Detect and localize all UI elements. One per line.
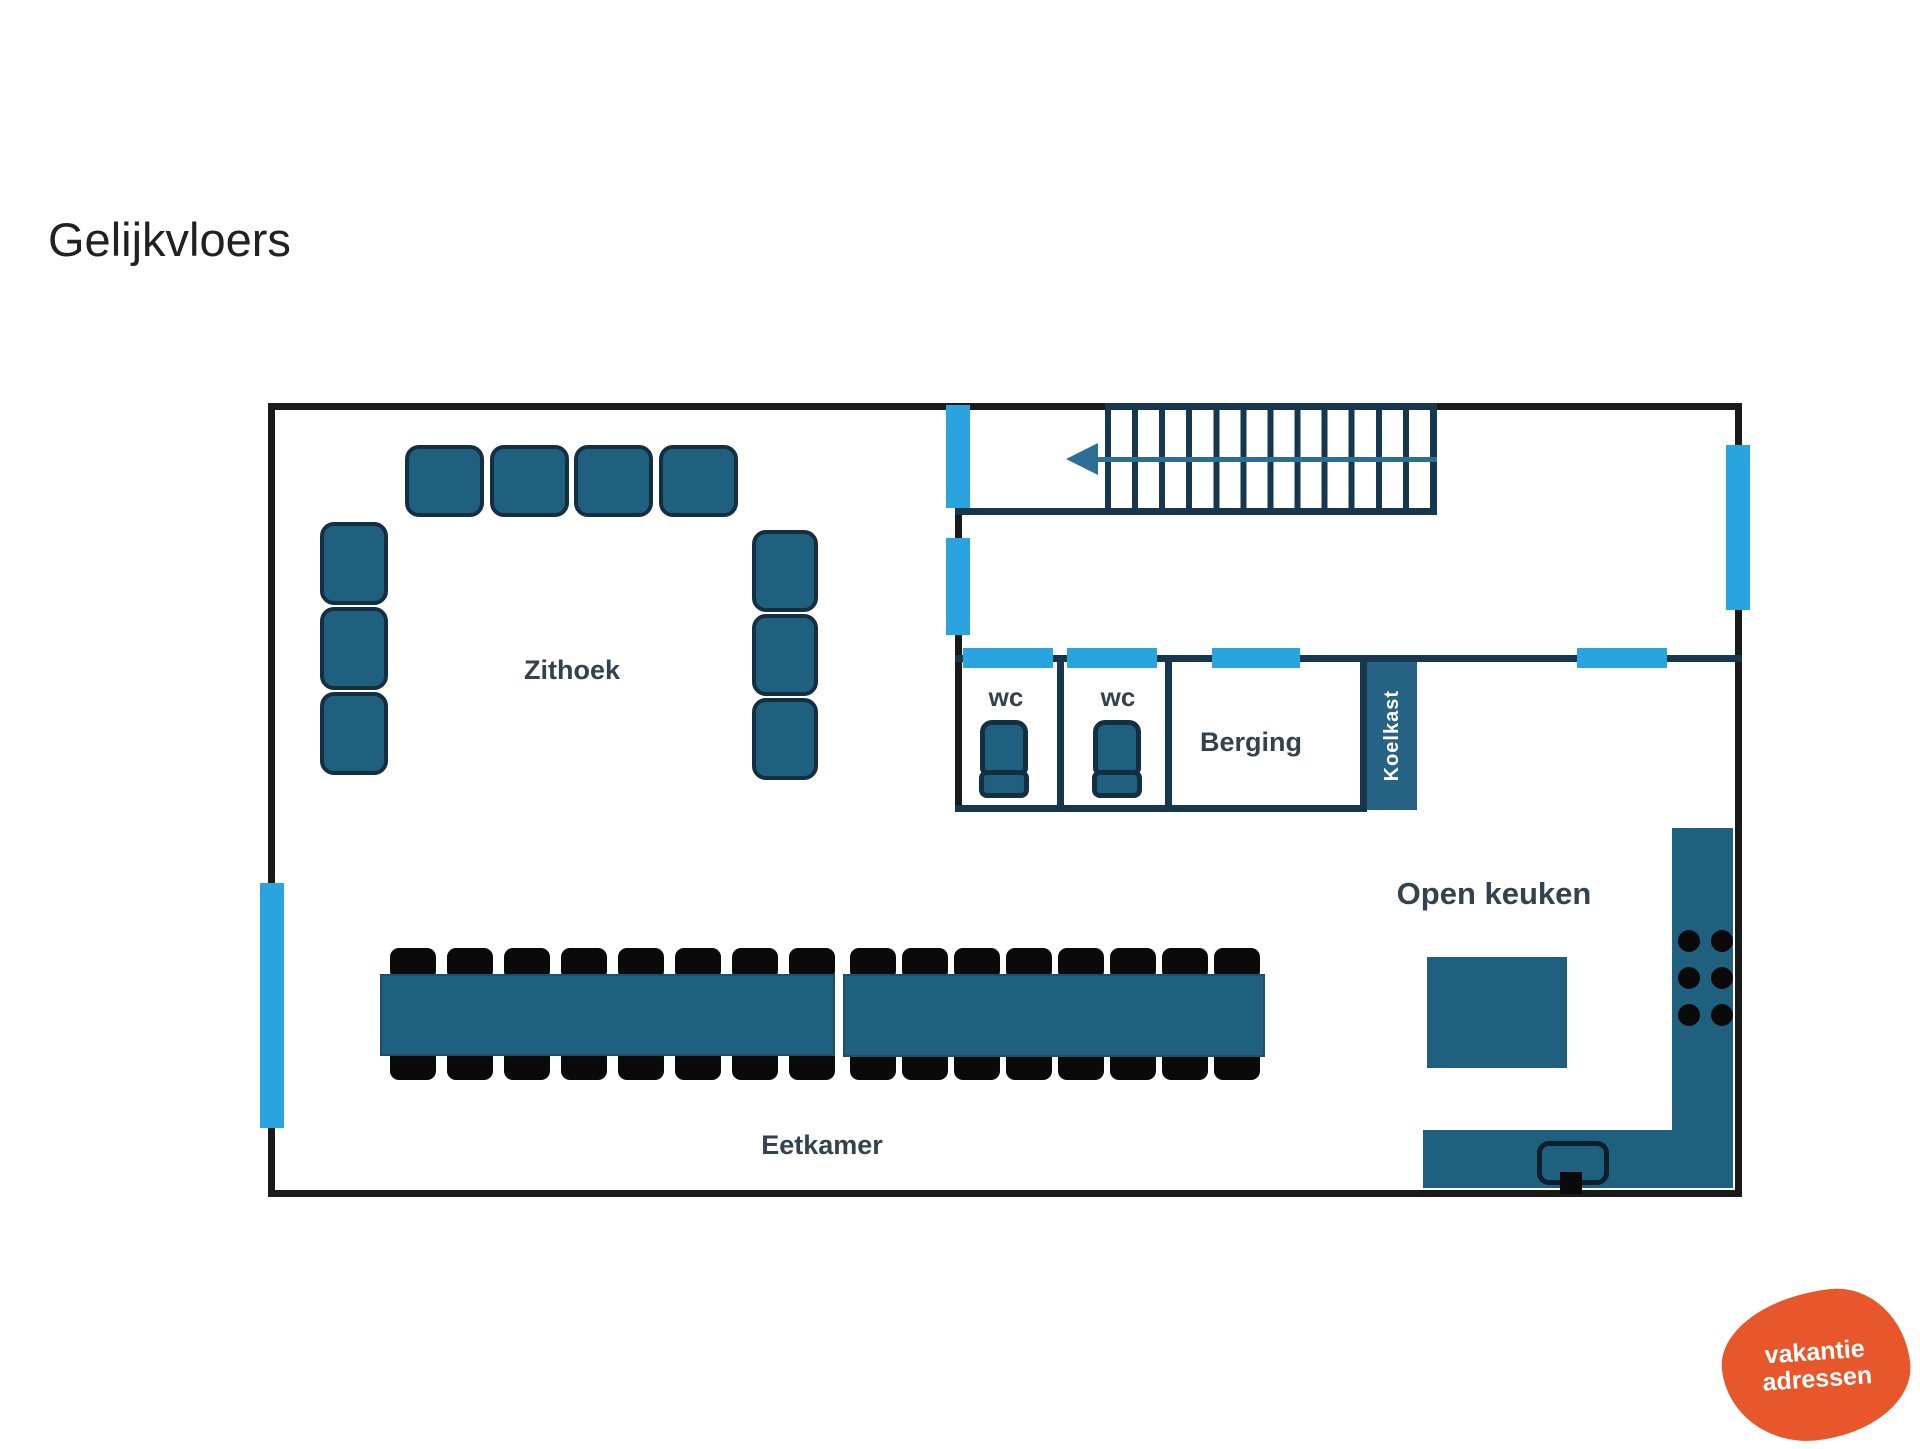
door-berging — [1212, 648, 1300, 668]
toilet-tank — [980, 720, 1028, 776]
wall-wc-divider — [1057, 655, 1064, 812]
vakantieadressen-logo: vakantie adressen — [1715, 1282, 1918, 1449]
room-label-wc-left: wc — [976, 682, 1036, 713]
window-right-wall — [1726, 445, 1750, 610]
page: { "title": "Gelijkvloers", "labels": { "… — [0, 0, 1920, 1440]
faucet-icon — [1560, 1172, 1582, 1194]
toilet-seat — [979, 770, 1029, 798]
stove — [1676, 928, 1734, 1028]
door-left-wall — [260, 883, 284, 1128]
room-label-wc-right: wc — [1088, 682, 1148, 713]
stair-arrow-head-icon — [1066, 443, 1098, 475]
wall-rooms-bottom — [955, 805, 1367, 812]
sofa-cushion-left — [320, 607, 388, 690]
toilet-seat — [1092, 770, 1142, 798]
wall-berging-right — [1360, 655, 1367, 810]
sofa-cushion-right — [752, 530, 818, 612]
stove-burner-icon — [1711, 1004, 1733, 1026]
stove-burner-icon — [1678, 967, 1700, 989]
sofa-cushion-left — [320, 522, 388, 605]
sofa-cushion-top — [574, 445, 653, 517]
dining-table-1 — [380, 974, 835, 1056]
room-label-eetkamer: Eetkamer — [742, 1130, 902, 1161]
door-corridor — [946, 538, 970, 635]
door-wc-left — [963, 648, 1053, 668]
toilet-right — [1093, 720, 1145, 802]
stove-burner-icon — [1711, 967, 1733, 989]
sofa-cushion-right — [752, 614, 818, 696]
fridge-label: Koelkast — [1381, 690, 1404, 781]
stove-burner-icon — [1678, 930, 1700, 952]
fridge: Koelkast — [1367, 662, 1417, 810]
sofa-cushion-left — [320, 692, 388, 775]
dining-table-2 — [843, 974, 1265, 1057]
door-kitchen-hall — [1577, 648, 1667, 668]
toilet-left — [980, 720, 1032, 802]
kitchen-island — [1427, 957, 1567, 1068]
stair-direction-arrow — [1095, 457, 1437, 462]
sofa-cushion-top — [659, 445, 738, 517]
room-label-zithoek: Zithoek — [492, 655, 652, 686]
door-stairhall — [946, 405, 970, 508]
room-label-berging: Berging — [1180, 727, 1322, 758]
sofa-cushion-top — [490, 445, 569, 517]
page-title: Gelijkvloers — [48, 212, 291, 267]
toilet-tank — [1093, 720, 1141, 776]
room-label-open-keuken: Open keuken — [1384, 876, 1604, 912]
stove-burner-icon — [1678, 1004, 1700, 1026]
sofa-cushion-right — [752, 698, 818, 780]
wall-wc2-right — [1165, 655, 1172, 812]
sofa-cushion-top — [405, 445, 484, 517]
logo-text-line2: adressen — [1762, 1362, 1873, 1397]
stove-burner-icon — [1711, 930, 1733, 952]
door-wc-right — [1067, 648, 1157, 668]
